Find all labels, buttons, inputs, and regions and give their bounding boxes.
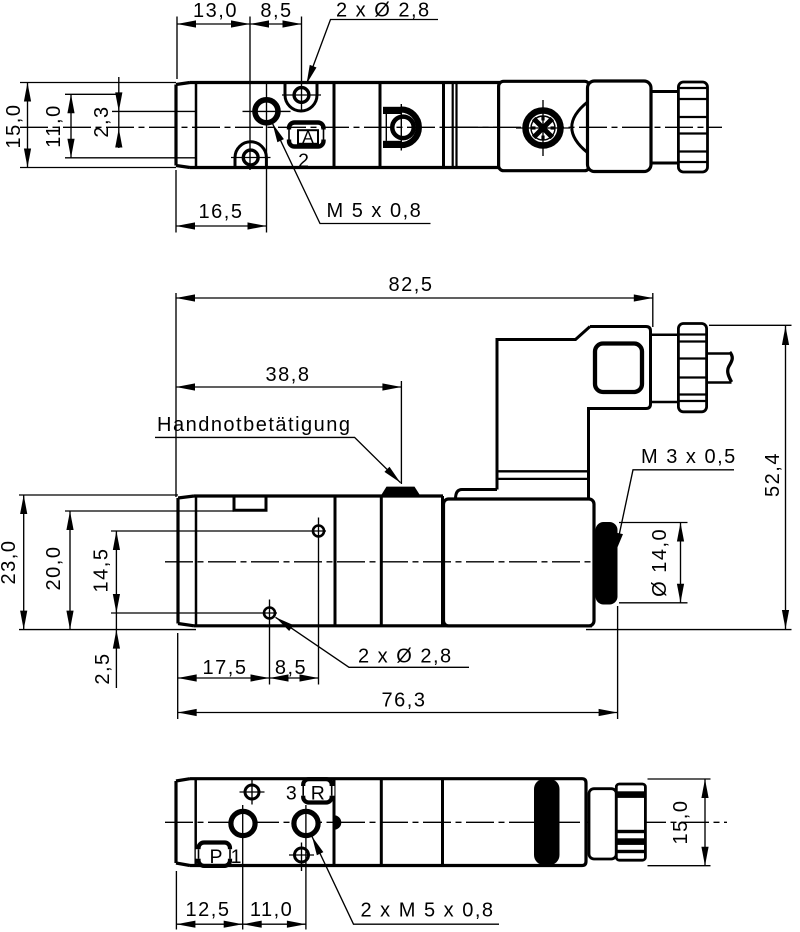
svg-text:11,0: 11,0	[250, 899, 293, 921]
svg-text:2 x Ø 2,8: 2 x Ø 2,8	[336, 0, 431, 22]
svg-text:17,5: 17,5	[203, 657, 248, 679]
svg-text:12,5: 12,5	[186, 899, 231, 921]
svg-text:P: P	[209, 846, 222, 868]
svg-text:1: 1	[231, 846, 242, 868]
svg-text:11,0: 11,0	[43, 104, 65, 147]
svg-text:23,0: 23,0	[0, 540, 20, 585]
svg-text:M 5 x 0,8: M 5 x 0,8	[327, 200, 423, 222]
svg-text:2: 2	[298, 150, 309, 172]
svg-text:20,0: 20,0	[43, 546, 65, 591]
svg-text:R: R	[311, 782, 325, 804]
svg-text:2,3: 2,3	[91, 105, 113, 137]
svg-text:76,3: 76,3	[382, 690, 427, 712]
svg-text:M 3 x 0,5: M 3 x 0,5	[641, 446, 737, 468]
svg-text:82,5: 82,5	[389, 274, 434, 296]
svg-text:52,4: 52,4	[762, 452, 784, 497]
svg-text:A: A	[302, 127, 314, 147]
svg-text:16,5: 16,5	[199, 201, 244, 223]
svg-text:3: 3	[286, 783, 297, 805]
svg-text:8,5: 8,5	[260, 0, 292, 22]
svg-text:2 x Ø 2,8: 2 x Ø 2,8	[358, 646, 453, 668]
svg-text:8,5: 8,5	[275, 657, 307, 679]
svg-text:38,8: 38,8	[266, 364, 311, 386]
svg-text:Handnotbetätigung: Handnotbetätigung	[157, 414, 352, 436]
svg-text:2,5: 2,5	[92, 652, 114, 684]
svg-text:15,0: 15,0	[3, 104, 25, 149]
svg-text:14,5: 14,5	[91, 548, 113, 593]
svg-text:Ø 14,0: Ø 14,0	[649, 528, 671, 597]
svg-text:13,0: 13,0	[193, 0, 238, 22]
svg-text:15,0: 15,0	[670, 800, 692, 845]
svg-text:2 x M 5 x 0,8: 2 x M 5 x 0,8	[361, 900, 495, 922]
